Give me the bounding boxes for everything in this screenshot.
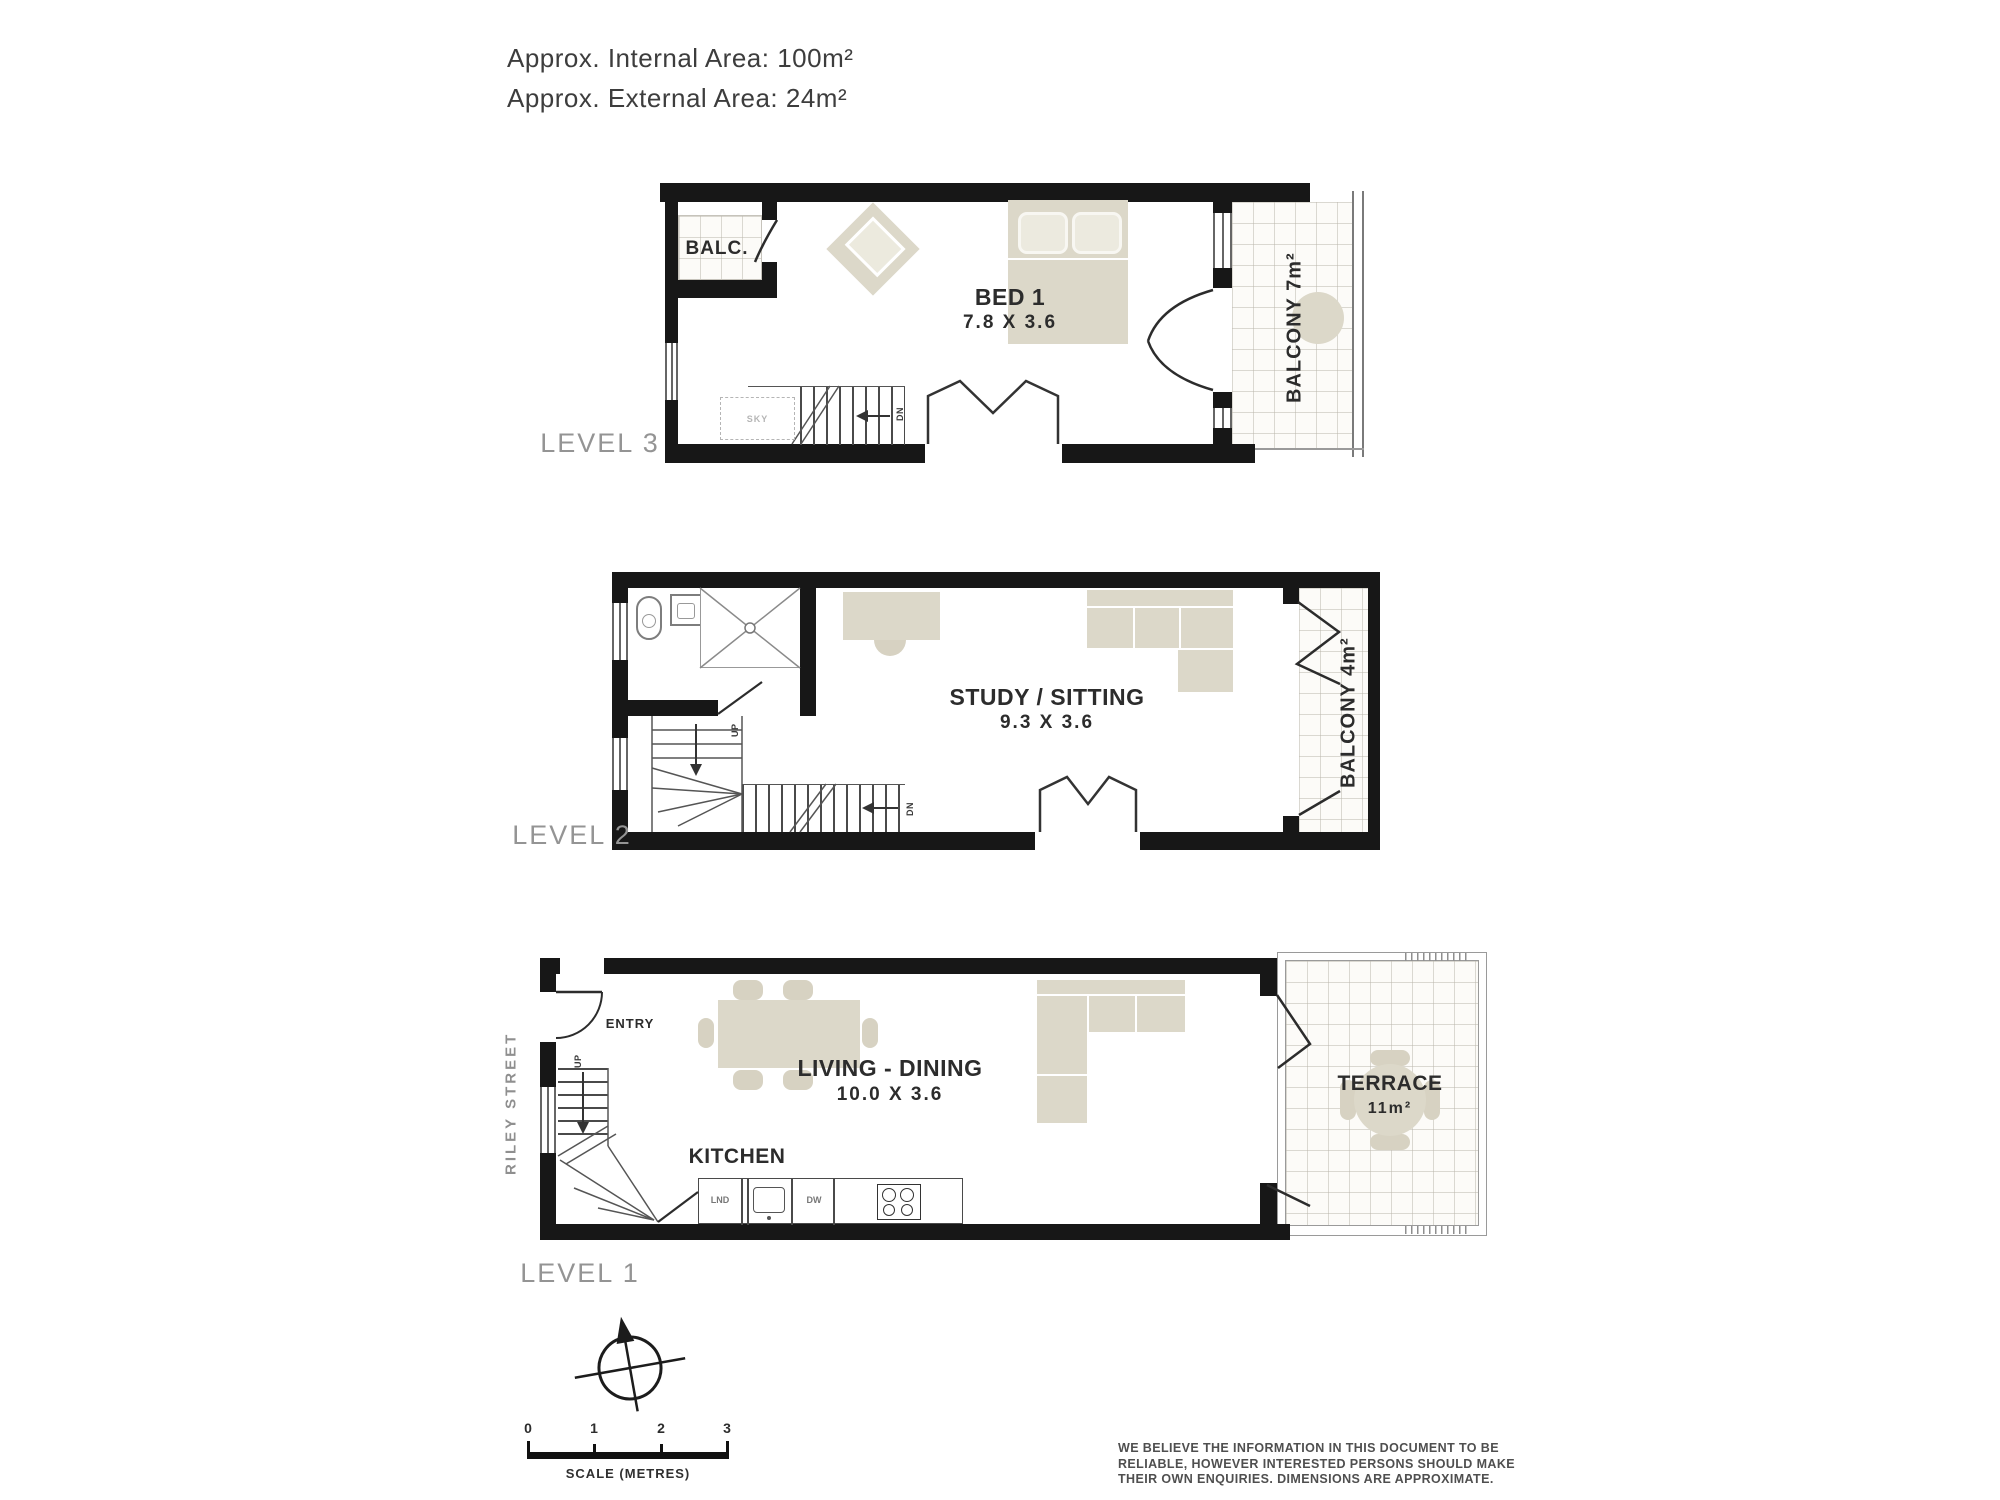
level1-plan: LND DW — [540, 950, 1490, 1242]
living-dims: 10.0 X 3.6 — [780, 1084, 1000, 1106]
seam — [1135, 994, 1137, 1032]
burner — [882, 1188, 896, 1202]
level3-plan: SKY DN BALC. BED 1 7.8 X 3.6 BALCONY 7m² — [660, 183, 1370, 465]
wall — [665, 280, 777, 298]
internal-area-text: Approx. Internal Area: 100m² — [507, 38, 853, 78]
desk-chair — [874, 640, 906, 656]
scale-number: 1 — [583, 1420, 605, 1436]
shower — [700, 588, 800, 668]
stair-treads — [800, 387, 905, 445]
dishwasher-label: DW — [795, 1195, 833, 1205]
scale-caption: SCALE (METRES) — [527, 1466, 729, 1481]
stairs-dn-label: DN — [903, 794, 917, 824]
window — [1213, 408, 1232, 428]
toilet — [636, 596, 662, 640]
level3-balcony-railing — [1352, 191, 1364, 457]
wall — [612, 660, 628, 738]
compass-icon — [568, 1312, 698, 1422]
wall — [1140, 832, 1380, 850]
divider — [833, 1179, 835, 1225]
level2-label: LEVEL 2 — [512, 820, 632, 851]
window — [665, 343, 678, 400]
divider — [747, 1179, 749, 1225]
wall — [665, 444, 925, 463]
terrace-label: TERRACE — [1310, 1072, 1470, 1096]
level2-balcony-label: BALCONY 4m² — [1334, 618, 1364, 808]
disclaimer-line: THEIR OWN ENQUIRIES. DIMENSIONS ARE APPR… — [1118, 1472, 1518, 1488]
wall — [540, 958, 560, 974]
stairs-up-label: UP — [571, 1048, 585, 1074]
wall — [1283, 588, 1299, 604]
wall — [612, 572, 1380, 588]
seam — [1087, 994, 1089, 1032]
divider — [741, 1179, 743, 1225]
armchair — [823, 199, 923, 299]
divider — [791, 1179, 793, 1225]
sofa — [1037, 980, 1185, 1032]
bed1-dims: 7.8 X 3.6 — [945, 312, 1075, 334]
basin-bowl — [677, 603, 695, 619]
wall — [1283, 816, 1299, 832]
wall — [762, 202, 777, 220]
external-area-text: Approx. External Area: 24m² — [507, 78, 853, 118]
cooktop — [877, 1184, 921, 1220]
wall — [1213, 268, 1232, 288]
study-label: STUDY / SITTING — [942, 684, 1152, 711]
toilet-bowl — [642, 614, 656, 628]
seam — [1133, 606, 1135, 648]
window — [540, 1087, 556, 1153]
floorplan-page: Approx. Internal Area: 100m² Approx. Ext… — [0, 0, 2000, 1500]
desk — [843, 592, 940, 640]
wall — [628, 700, 718, 716]
scale-bar-line — [527, 1452, 729, 1459]
wall — [665, 202, 678, 343]
dining-chair — [733, 980, 763, 1000]
seam — [1008, 258, 1128, 260]
seam — [1037, 994, 1185, 996]
burner — [883, 1204, 895, 1216]
wall — [1260, 1183, 1277, 1224]
skylight-label: SKY — [747, 414, 769, 424]
window — [612, 603, 628, 660]
wall — [1368, 588, 1380, 832]
scale-tick — [527, 1441, 530, 1459]
window — [612, 738, 628, 790]
dining-chair — [733, 1070, 763, 1090]
wall — [540, 1042, 556, 1087]
level3-balcony-label: BALCONY 7m² — [1280, 213, 1310, 443]
wall — [1062, 444, 1255, 463]
disclaimer-line: WE BELIEVE THE INFORMATION IN THIS DOCUM… — [1118, 1441, 1518, 1457]
planter — [1405, 953, 1471, 961]
seam — [1179, 606, 1181, 648]
seam — [1037, 1074, 1087, 1076]
disclaimer-line: RELIABLE, HOWEVER INTERESTED PERSONS SHO… — [1118, 1457, 1518, 1473]
stairs-dn-label: DN — [893, 399, 907, 429]
dining-chair — [698, 1018, 714, 1048]
scale-tick — [593, 1444, 596, 1459]
level3-label: LEVEL 3 — [540, 428, 660, 459]
burner — [901, 1204, 913, 1216]
wall — [660, 183, 1310, 202]
dining-chair — [862, 1018, 878, 1048]
living-label: LIVING - DINING — [780, 1055, 1000, 1082]
scale-number: 3 — [716, 1420, 738, 1436]
kitchen-label: KITCHEN — [657, 1145, 817, 1169]
north-arrow — [612, 1315, 634, 1344]
wall — [762, 262, 777, 280]
wall — [540, 974, 556, 992]
stairs-run-level2 — [742, 784, 905, 832]
armchair-seat — [845, 216, 906, 277]
dining-chair — [783, 980, 813, 1000]
sink-tap — [767, 1216, 771, 1220]
skylight: SKY — [720, 397, 795, 440]
scale-tick — [726, 1441, 729, 1459]
balc-label: BALC. — [682, 238, 752, 260]
armchair-body — [826, 202, 919, 295]
scale-tick — [660, 1444, 663, 1459]
wall — [612, 588, 628, 603]
burner — [900, 1188, 914, 1202]
level1-label: LEVEL 1 — [520, 1258, 640, 1289]
pillow — [1018, 212, 1068, 254]
sofa-arm — [1037, 1032, 1087, 1123]
wall — [1213, 428, 1232, 444]
disclaimer: WE BELIEVE THE INFORMATION IN THIS DOCUM… — [1118, 1441, 1518, 1488]
stairs-up-label: UP — [728, 716, 742, 744]
wall — [800, 588, 816, 716]
scale-number: 2 — [650, 1420, 672, 1436]
seam — [1178, 648, 1233, 650]
pillow — [1072, 212, 1122, 254]
street-name: RILEY STREET — [496, 1018, 526, 1188]
sofa — [1087, 590, 1233, 648]
wall — [612, 832, 1035, 850]
seam — [1087, 606, 1233, 608]
planter — [1405, 1226, 1471, 1234]
bed1-label: BED 1 — [945, 284, 1075, 311]
wall — [1213, 202, 1232, 213]
kitchen-counter: LND DW — [698, 1178, 963, 1224]
sofa-chaise — [1178, 648, 1233, 692]
terrace-chair — [1370, 1134, 1410, 1150]
terrace-area: 11m² — [1310, 1100, 1470, 1118]
study-dims: 9.3 X 3.6 — [942, 712, 1152, 734]
wall — [540, 1224, 1290, 1240]
header: Approx. Internal Area: 100m² Approx. Ext… — [507, 38, 853, 118]
laundry-label: LND — [699, 1195, 741, 1205]
level2-plan: UP DN STUDY / SITTING 9.3 X 3.6 BALCONY … — [612, 572, 1380, 850]
wall — [604, 958, 1277, 974]
window — [1213, 213, 1232, 268]
basin — [670, 594, 702, 626]
stairs-level1 — [558, 1068, 608, 1146]
scale-number: 0 — [517, 1420, 539, 1436]
wall — [665, 400, 678, 444]
entry-label: ENTRY — [590, 1016, 670, 1031]
wall — [1260, 962, 1277, 996]
wall — [1213, 392, 1232, 408]
sink — [753, 1187, 785, 1213]
